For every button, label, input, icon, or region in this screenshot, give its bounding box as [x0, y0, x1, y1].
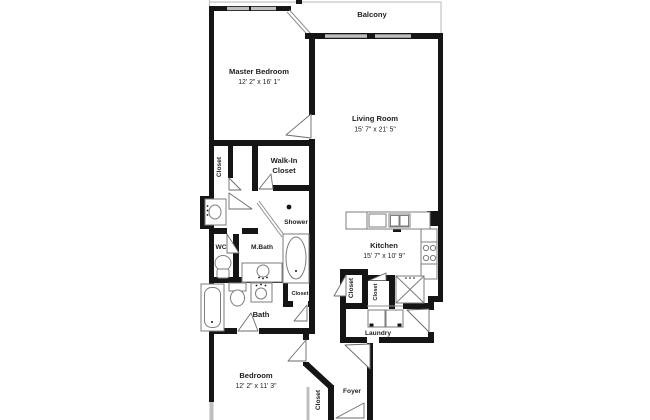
- master-bedroom-label: Master Bedroom: [229, 67, 289, 76]
- bath-closet-door: [294, 305, 307, 321]
- master-closet-door: [229, 178, 241, 190]
- balcony-label: Balcony: [357, 10, 387, 19]
- bedroom-closet-label: Closet: [315, 389, 322, 410]
- hall-vanity-sink: [205, 199, 226, 225]
- foyer-label: Foyer: [343, 388, 361, 395]
- foyer-laundry-door: [345, 344, 370, 369]
- living-room-dims: 15' 7" x 21' 5": [354, 127, 396, 134]
- kitchen-stove: [421, 242, 437, 264]
- washer-dryer: [368, 310, 403, 327]
- mbath-tub: [283, 234, 309, 283]
- laundry-side-door: [407, 309, 429, 332]
- entry-door: [336, 403, 364, 418]
- living-room-label: Living Room: [352, 114, 398, 123]
- bedroom-closet-slider: [307, 387, 310, 420]
- master-bath-label: M.Bath: [251, 244, 273, 251]
- walk-in-closet-door: [259, 174, 273, 189]
- bath-tub: [201, 284, 224, 331]
- bath-closet-label: Closet: [291, 291, 308, 297]
- master-bedroom-door: [286, 114, 311, 138]
- pantry-closet-label: Closet: [348, 277, 355, 298]
- bath-label: Bath: [253, 310, 270, 319]
- bedroom-door: [288, 340, 306, 361]
- bath-sink: [251, 283, 272, 302]
- floor-plan-page: Balcony Master Bedroom 12' 2" x 16' 1" L…: [0, 0, 650, 420]
- walk-in-closet-label-line2: Closet: [272, 166, 296, 175]
- laundry-label: Laundry: [365, 330, 391, 337]
- master-bath-hall-door: [229, 193, 252, 209]
- refrigerator: [396, 276, 424, 303]
- bedroom-label: Bedroom: [239, 371, 273, 380]
- kitchen-label: Kitchen: [370, 241, 398, 250]
- balcony-outline: [210, 0, 442, 34]
- shower-label: Shower: [284, 219, 308, 226]
- kitchen-closet-label: Closet: [373, 283, 379, 300]
- master-closet-label: Closet: [216, 156, 223, 177]
- kitchen-dims: 15' 7" x 10' 9": [363, 253, 405, 260]
- master-bedroom-dims: 12' 2" x 16' 1": [238, 79, 280, 86]
- mbath-sink: [242, 263, 282, 282]
- wc-toilet: [215, 256, 231, 279]
- bedroom-dims: 12' 2" x 11' 3": [235, 383, 277, 390]
- floor-plan-drawing: Balcony Master Bedroom 12' 2" x 16' 1" L…: [0, 0, 650, 420]
- walk-in-closet-label-line1: Walk-In: [271, 156, 298, 165]
- bath-toilet: [229, 283, 246, 306]
- wc-label: WC: [216, 244, 227, 251]
